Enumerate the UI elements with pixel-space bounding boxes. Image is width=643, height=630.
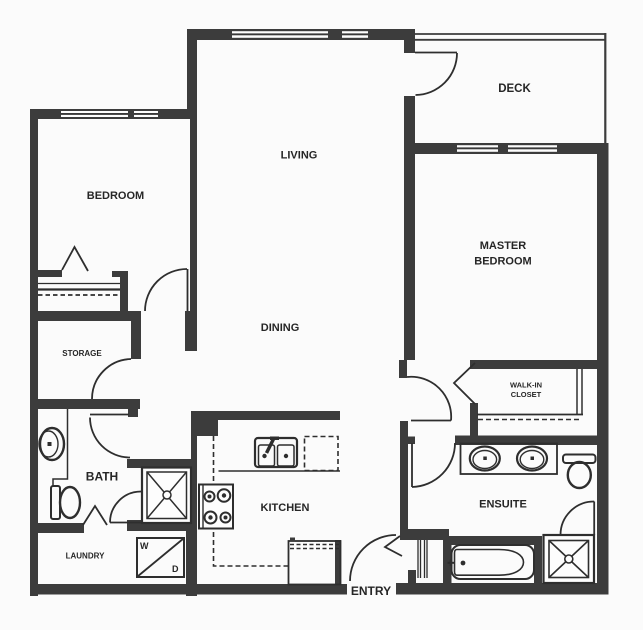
svg-text:KITCHEN: KITCHEN xyxy=(261,502,310,514)
svg-text:DECK: DECK xyxy=(498,83,531,95)
svg-text:CLOSET: CLOSET xyxy=(511,390,542,399)
svg-text:BEDROOM: BEDROOM xyxy=(87,190,144,202)
svg-text:LAUNDRY: LAUNDRY xyxy=(66,552,105,561)
svg-text:DINING: DINING xyxy=(261,322,300,334)
svg-text:WALK-IN: WALK-IN xyxy=(510,381,542,390)
svg-text:W: W xyxy=(140,541,149,551)
svg-text:ENSUITE: ENSUITE xyxy=(479,499,527,511)
svg-text:STORAGE: STORAGE xyxy=(62,349,102,358)
svg-text:BEDROOM: BEDROOM xyxy=(474,256,531,268)
svg-text:D: D xyxy=(172,564,179,574)
svg-text:ENTRY: ENTRY xyxy=(351,584,391,598)
svg-text:LIVING: LIVING xyxy=(281,150,318,162)
svg-text:MASTER: MASTER xyxy=(480,240,527,252)
svg-text:BATH: BATH xyxy=(86,470,118,484)
